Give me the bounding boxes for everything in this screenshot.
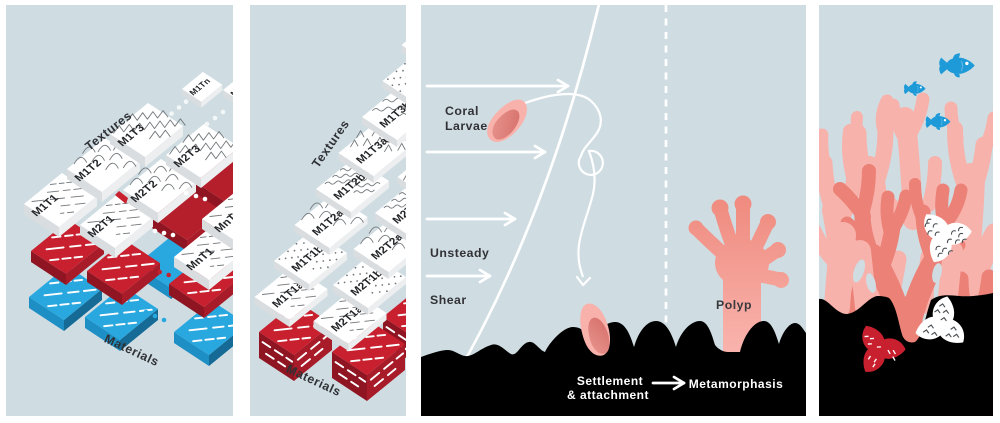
svg-text:Metamorphasis: Metamorphasis — [689, 377, 784, 391]
svg-text:Coral: Coral — [445, 104, 479, 118]
svg-text:Shear: Shear — [430, 293, 467, 307]
svg-text:Settlement: Settlement — [577, 374, 643, 388]
svg-text:Polyp: Polyp — [716, 298, 752, 312]
svg-text:Unsteady: Unsteady — [430, 246, 489, 260]
svg-text:Larvae: Larvae — [445, 119, 488, 133]
svg-text:& attachment: & attachment — [567, 388, 649, 402]
